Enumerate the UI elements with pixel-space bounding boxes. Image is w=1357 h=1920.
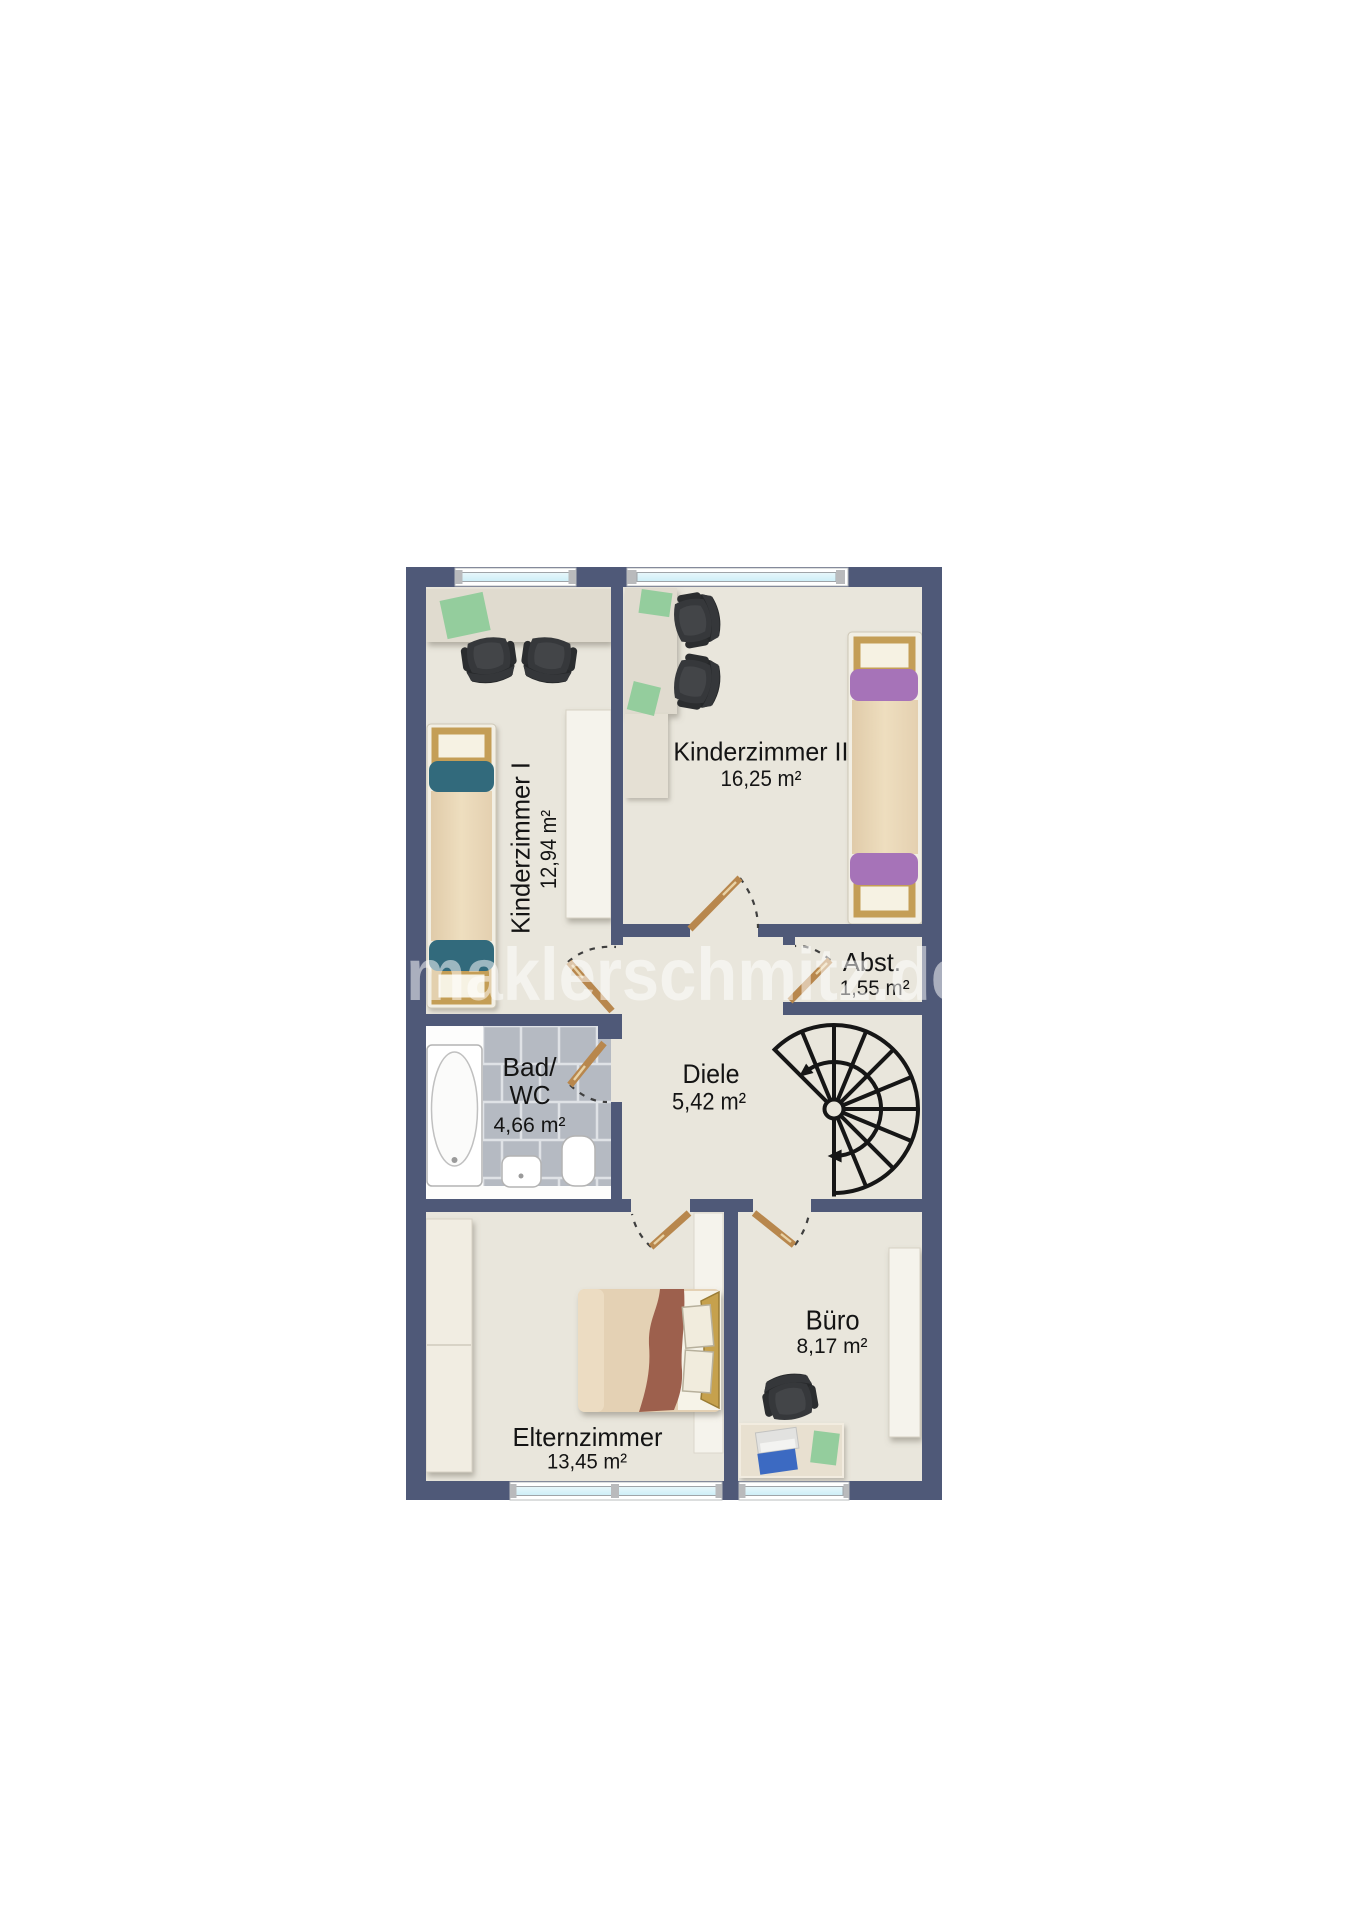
svg-text:Kinderzimmer II: Kinderzimmer II (673, 737, 848, 767)
svg-text:5,42 m²: 5,42 m² (672, 1089, 746, 1116)
svg-text:maklerschmitz.de: maklerschmitz.de (406, 933, 968, 1016)
svg-text:16,25 m²: 16,25 m² (721, 766, 802, 791)
svg-text:Bad/: Bad/ (503, 1052, 558, 1082)
svg-text:Elternzimmer: Elternzimmer (513, 1422, 663, 1452)
svg-text:Kinderzimmer I: Kinderzimmer I (506, 762, 536, 934)
svg-text:Büro: Büro (806, 1305, 860, 1336)
svg-text:WC: WC (510, 1080, 551, 1110)
svg-text:13,45 m²: 13,45 m² (547, 1451, 627, 1474)
svg-text:12,94 m²: 12,94 m² (536, 810, 561, 889)
svg-text:4,66 m²: 4,66 m² (494, 1114, 566, 1137)
svg-text:8,17 m²: 8,17 m² (797, 1335, 868, 1358)
svg-text:Diele: Diele (683, 1059, 740, 1089)
